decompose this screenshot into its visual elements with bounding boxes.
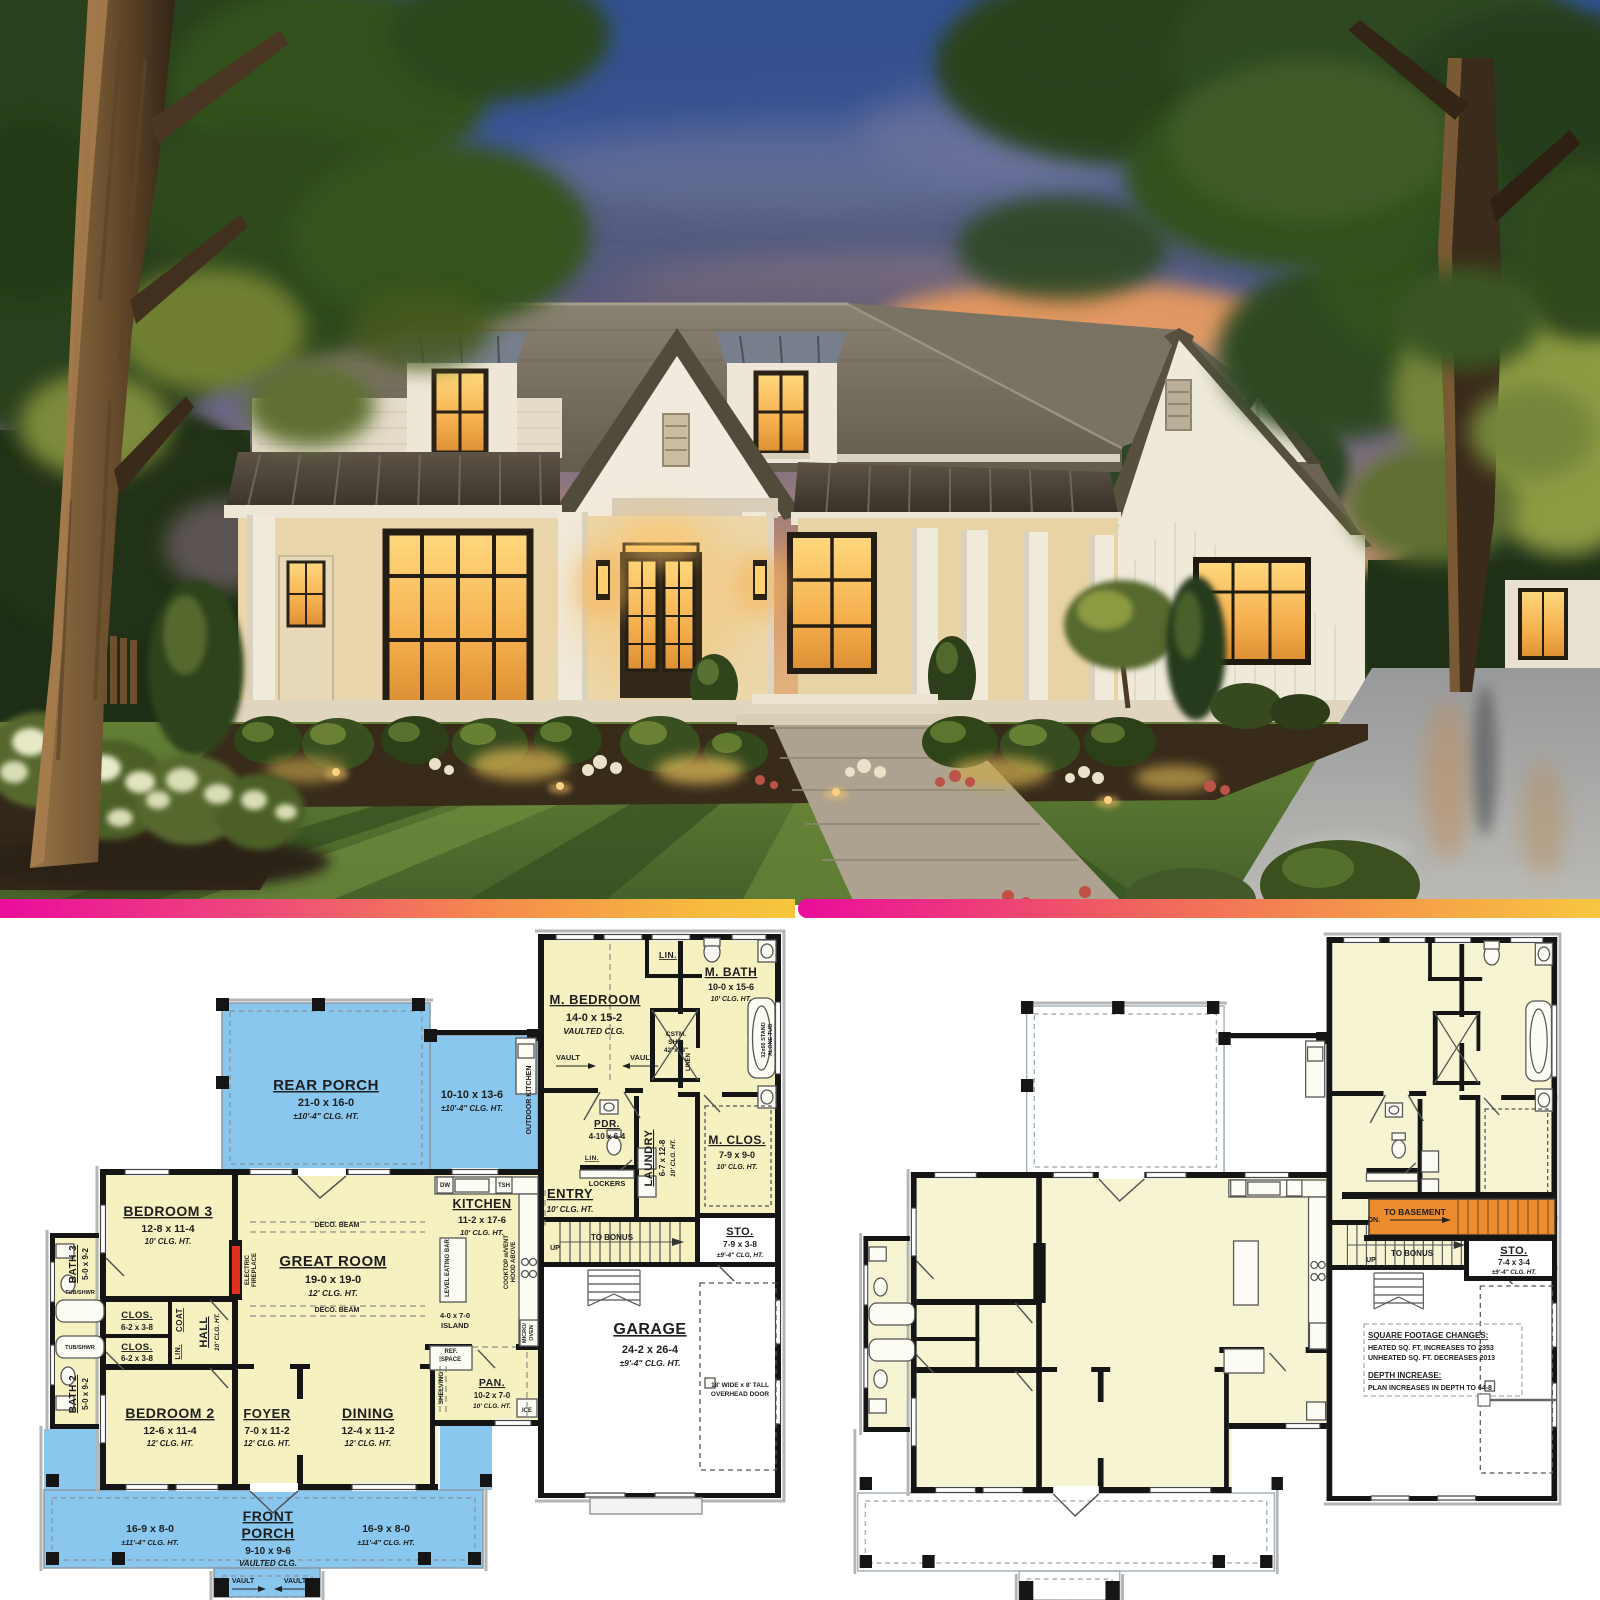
svg-text:10' CLG. HT.: 10' CLG. HT.	[711, 996, 752, 1003]
svg-text:±9'-4" CLG. HT.: ±9'-4" CLG. HT.	[1492, 1269, 1537, 1276]
svg-text:14-0 x 15-2: 14-0 x 15-2	[566, 1012, 622, 1024]
svg-text:10-0 x 15-6: 10-0 x 15-6	[708, 982, 754, 992]
svg-text:M. CLOS.: M. CLOS.	[708, 1133, 765, 1147]
svg-text:18' WIDE x 8' TALL: 18' WIDE x 8' TALL	[711, 1382, 769, 1389]
svg-text:MICRO/: MICRO/	[522, 1323, 528, 1343]
svg-text:10' CLG. HT.: 10' CLG. HT.	[547, 1205, 594, 1214]
svg-text:PLAN INCREASES IN DEPTH TO 64-: PLAN INCREASES IN DEPTH TO 64-8	[1368, 1385, 1492, 1392]
svg-text:DW: DW	[440, 1183, 450, 1189]
svg-text:LIN.: LIN.	[585, 1155, 599, 1162]
svg-text:UP: UP	[1366, 1257, 1376, 1264]
svg-text:BATH 3: BATH 3	[68, 1245, 79, 1283]
svg-text:LINEN: LINEN	[686, 1053, 692, 1071]
svg-text:LIN.: LIN.	[659, 950, 677, 960]
svg-text:UNHEATED SQ. FT. DECREASES 201: UNHEATED SQ. FT. DECREASES 2013	[1368, 1355, 1495, 1362]
svg-text:10' CLG. HT.: 10' CLG. HT.	[717, 1164, 758, 1171]
svg-text:PORCH: PORCH	[241, 1525, 294, 1541]
svg-text:FOYER: FOYER	[243, 1406, 290, 1421]
svg-text:9-10 x 9-6: 9-10 x 9-6	[245, 1546, 291, 1557]
svg-text:REF.: REF.	[444, 1349, 457, 1355]
svg-text:DECO. BEAM: DECO. BEAM	[315, 1307, 360, 1314]
svg-text:4-0 x 7-0: 4-0 x 7-0	[440, 1311, 470, 1320]
svg-text:VAULT: VAULT	[284, 1578, 307, 1585]
svg-text:BATH 2: BATH 2	[68, 1375, 79, 1413]
svg-text:ENTRY: ENTRY	[547, 1186, 593, 1201]
svg-text:FRONT: FRONT	[243, 1508, 294, 1524]
svg-text:4-10 x 6-4: 4-10 x 6-4	[589, 1132, 626, 1141]
svg-text:CLOS.: CLOS.	[121, 1342, 153, 1353]
svg-text:LIN.: LIN.	[175, 1344, 182, 1359]
svg-text:HOOD ABOVE: HOOD ABOVE	[511, 1242, 517, 1283]
svg-text:VAULT: VAULT	[232, 1578, 255, 1585]
svg-text:6-2 x 3-8: 6-2 x 3-8	[121, 1354, 154, 1363]
svg-text:5-0 x 9-2: 5-0 x 9-2	[81, 1377, 90, 1410]
svg-text:21-0 x 16-0: 21-0 x 16-0	[298, 1097, 354, 1109]
svg-text:24-2 x 26-4: 24-2 x 26-4	[622, 1344, 679, 1356]
svg-text:DEPTH INCREASE:: DEPTH INCREASE:	[1368, 1371, 1441, 1380]
svg-text:CSTM.: CSTM.	[666, 1031, 686, 1038]
svg-text:REAR PORCH: REAR PORCH	[273, 1077, 379, 1094]
svg-text:TUB/SHWR: TUB/SHWR	[65, 1345, 95, 1351]
svg-text:DECO. BEAM: DECO. BEAM	[315, 1222, 360, 1229]
svg-text:OUTDOOR KITCHEN: OUTDOOR KITCHEN	[526, 1066, 533, 1135]
svg-text:12' CLG. HT.: 12' CLG. HT.	[345, 1439, 392, 1448]
svg-text:±9'-4" CLG. HT.: ±9'-4" CLG. HT.	[619, 1358, 680, 1368]
svg-text:12' CLG. HT.: 12' CLG. HT.	[244, 1439, 291, 1448]
svg-text:TUB/SHWR: TUB/SHWR	[65, 1290, 95, 1296]
svg-text:TO BASEMENT: TO BASEMENT	[1384, 1207, 1447, 1217]
svg-text:KITCHEN: KITCHEN	[452, 1197, 511, 1211]
svg-text:GREAT ROOM: GREAT ROOM	[279, 1253, 386, 1270]
svg-text:±11'-4" CLG. HT.: ±11'-4" CLG. HT.	[357, 1538, 415, 1547]
svg-text:12-8 x 11-4: 12-8 x 11-4	[141, 1223, 194, 1235]
svg-text:PAN.: PAN.	[479, 1377, 505, 1389]
svg-text:6-7 x 12-8: 6-7 x 12-8	[658, 1139, 667, 1176]
svg-text:SHR.: SHR.	[668, 1039, 684, 1046]
svg-text:±9'-4" CLG. HT.: ±9'-4" CLG. HT.	[717, 1252, 764, 1259]
svg-text:12-4 x 11-2: 12-4 x 11-2	[341, 1425, 394, 1437]
svg-text:ISLAND: ISLAND	[441, 1321, 470, 1330]
svg-text:HALL: HALL	[198, 1316, 210, 1347]
svg-text:7-4 x 3-4: 7-4 x 3-4	[1498, 1258, 1531, 1267]
svg-text:UP: UP	[550, 1245, 560, 1252]
svg-text:ICE: ICE	[522, 1408, 532, 1414]
svg-text:16-9 x 8-0: 16-9 x 8-0	[362, 1523, 410, 1535]
svg-text:±10'-4" CLG. HT.: ±10'-4" CLG. HT.	[293, 1111, 359, 1121]
svg-text:10' CLG. HT.: 10' CLG. HT.	[214, 1313, 221, 1351]
svg-text:COAT: COAT	[175, 1308, 184, 1332]
svg-text:LAUNDRY: LAUNDRY	[643, 1129, 655, 1186]
svg-text:5-0 x 9-2: 5-0 x 9-2	[81, 1247, 90, 1280]
svg-text:11-2 x 17-6: 11-2 x 17-6	[458, 1215, 506, 1226]
svg-text:32x66 STAND: 32x66 STAND	[761, 1022, 767, 1057]
svg-text:VAULTED CLG.: VAULTED CLG.	[563, 1026, 625, 1036]
svg-text:TSH: TSH	[498, 1183, 510, 1189]
svg-text:VAULT: VAULT	[630, 1053, 654, 1062]
svg-text:10' CLG. HT.: 10' CLG. HT.	[473, 1403, 511, 1410]
svg-text:STO.: STO.	[726, 1226, 753, 1238]
svg-text:±10'-4" CLG. HT.: ±10'-4" CLG. HT.	[441, 1104, 503, 1113]
svg-text:12' CLG. HT.: 12' CLG. HT.	[147, 1439, 194, 1448]
svg-text:LEVEL EATING BAR: LEVEL EATING BAR	[445, 1238, 451, 1296]
svg-text:SPACE: SPACE	[441, 1357, 461, 1363]
svg-text:16-9 x 8-0: 16-9 x 8-0	[126, 1523, 174, 1535]
svg-text:7-9 x 3-8: 7-9 x 3-8	[723, 1239, 757, 1249]
svg-text:COOKTOP w/VENT: COOKTOP w/VENT	[504, 1235, 510, 1289]
svg-text:TO BONUS: TO BONUS	[591, 1233, 634, 1242]
svg-text:10-2 x 7-0: 10-2 x 7-0	[474, 1391, 511, 1400]
svg-text:FIREPLACE: FIREPLACE	[252, 1253, 258, 1287]
svg-text:M. BEDROOM: M. BEDROOM	[550, 992, 641, 1007]
svg-text:7-9 x 9-0: 7-9 x 9-0	[719, 1150, 755, 1160]
svg-text:6-2 x 3-8: 6-2 x 3-8	[121, 1323, 154, 1332]
svg-text:TO BONUS: TO BONUS	[1391, 1249, 1434, 1258]
svg-text:10' CLG. HT.: 10' CLG. HT.	[145, 1237, 192, 1246]
svg-text:BEDROOM 2: BEDROOM 2	[125, 1405, 214, 1421]
svg-text:BEDROOM 3: BEDROOM 3	[123, 1203, 212, 1219]
svg-text:12' CLG. HT.: 12' CLG. HT.	[308, 1288, 358, 1298]
svg-text:PDR.: PDR.	[594, 1119, 620, 1130]
svg-text:LOCKERS: LOCKERS	[589, 1179, 626, 1188]
svg-text:10' CLG. HT.: 10' CLG. HT.	[460, 1228, 504, 1237]
svg-text:HEATED SQ. FT. INCREASES TO 23: HEATED SQ. FT. INCREASES TO 2353	[1368, 1345, 1494, 1352]
svg-text:12-6 x 11-4: 12-6 x 11-4	[143, 1425, 196, 1437]
svg-text:DINING: DINING	[342, 1405, 394, 1421]
svg-text:10-10 x 13-6: 10-10 x 13-6	[441, 1089, 503, 1101]
svg-text:CLOS.: CLOS.	[121, 1310, 153, 1321]
svg-text:OVEN: OVEN	[529, 1325, 535, 1341]
svg-text:ELECTRIC: ELECTRIC	[245, 1254, 251, 1285]
svg-text:STO.: STO.	[1500, 1245, 1527, 1257]
svg-text:M. BATH: M. BATH	[705, 965, 758, 979]
svg-text:19-0 x 19-0: 19-0 x 19-0	[305, 1274, 361, 1286]
svg-text:OVERHEAD DOOR: OVERHEAD DOOR	[711, 1391, 769, 1398]
svg-text:VAULTED CLG.: VAULTED CLG.	[239, 1559, 297, 1568]
svg-text:VAULT: VAULT	[556, 1053, 580, 1062]
svg-text:DN.: DN.	[1368, 1217, 1380, 1224]
svg-text:42"x78": 42"x78"	[664, 1047, 688, 1054]
svg-text:7-0 x 11-2: 7-0 x 11-2	[244, 1426, 289, 1437]
svg-text:ALONE TUB: ALONE TUB	[768, 1024, 774, 1056]
svg-text:±11'-4" CLG. HT.: ±11'-4" CLG. HT.	[121, 1538, 179, 1547]
svg-text:GARAGE: GARAGE	[613, 1321, 686, 1338]
svg-text:SQUARE FOOTAGE CHANGES:: SQUARE FOOTAGE CHANGES:	[1368, 1331, 1488, 1340]
svg-text:SHELVING: SHELVING	[438, 1372, 445, 1405]
svg-text:10' CLG. HT.: 10' CLG. HT.	[670, 1139, 677, 1177]
